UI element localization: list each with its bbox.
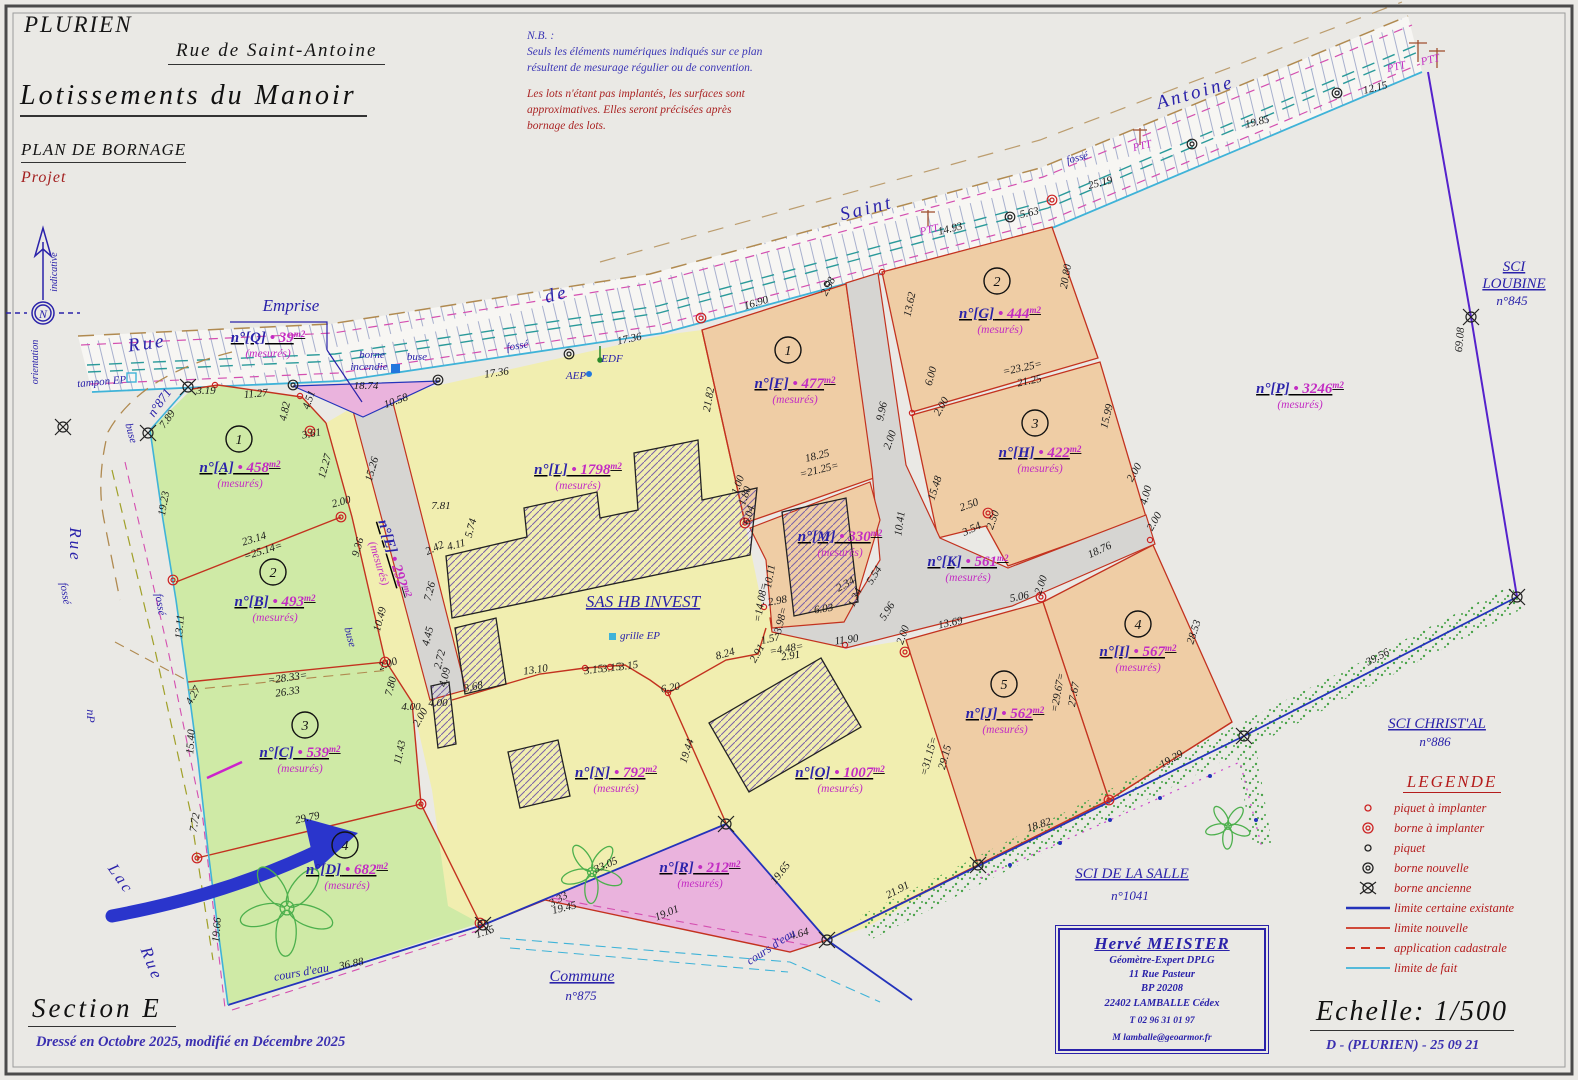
svg-text:n°[C] • 539m2: n°[C] • 539m2 xyxy=(259,744,341,761)
map-label: indicative xyxy=(49,252,60,292)
map-label: Rue xyxy=(66,526,85,562)
svg-text:3: 3 xyxy=(1031,417,1039,432)
svg-text:(mesurés): (mesurés) xyxy=(593,783,639,795)
legend-item-label: limite nouvelle xyxy=(1394,921,1468,936)
measurement-label: 4.00 xyxy=(1138,484,1155,506)
map-label: EDF xyxy=(600,353,623,365)
borne-anc-icon xyxy=(55,419,71,435)
legend-item-label: borne ancienne xyxy=(1394,881,1471,896)
svg-text:2: 2 xyxy=(270,566,277,581)
svg-text:n°[F] • 477m2: n°[F] • 477m2 xyxy=(754,375,836,392)
surveyor-address1: 11 Rue Pasteur xyxy=(1062,968,1262,982)
map-label: buse xyxy=(407,351,427,363)
svg-text:(mesurés): (mesurés) xyxy=(1277,399,1323,411)
measurement-label: 18.74 xyxy=(354,380,379,392)
legend-item-limite-nouvelle: limite nouvelle xyxy=(1338,918,1566,938)
map-label: Commune xyxy=(550,968,615,985)
measurement-label: 7.81 xyxy=(431,500,450,512)
map-label: n°875 xyxy=(565,988,597,1003)
svg-text:n°[H] • 422m2: n°[H] • 422m2 xyxy=(999,444,1082,461)
warn-line1: Les lots n'étant pas implantés, les surf… xyxy=(527,86,837,102)
measurement-label: 2.00 xyxy=(1144,510,1164,533)
warn-line2: approximatives. Elles seront précisées a… xyxy=(527,102,837,118)
svg-text:(mesurés): (mesurés) xyxy=(324,880,370,892)
nb-note: N.B. : Seuls les éléments numériques ind… xyxy=(527,28,837,76)
svg-text:(mesurés): (mesurés) xyxy=(1017,463,1063,475)
legend-item-label: borne à implanter xyxy=(1394,821,1484,836)
map-label: PTT xyxy=(1419,52,1442,69)
legend-item-borne-ancienne: borne ancienne xyxy=(1338,878,1566,898)
legend-item-limite-fait: limite de fait xyxy=(1338,958,1566,978)
application-cadastrale-icon xyxy=(1338,940,1394,956)
svg-text:n°[P] • 3246m2: n°[P] • 3246m2 xyxy=(1256,380,1344,397)
svg-text:n°[M] • 330m2: n°[M] • 330m2 xyxy=(798,528,883,545)
svg-text:n°[K] • 561m2: n°[K] • 561m2 xyxy=(927,553,1009,570)
svg-text:(mesurés): (mesurés) xyxy=(252,612,298,624)
svg-text:4: 4 xyxy=(1135,618,1142,633)
legend-item-borne-implanter: borne à implanter xyxy=(1338,818,1566,838)
measurement-label: 15.40 xyxy=(184,729,198,755)
section-label: Section E xyxy=(28,993,176,1027)
svg-text:(mesurés): (mesurés) xyxy=(817,547,863,559)
limite-nouvelle-icon xyxy=(1338,920,1394,936)
legend: LEGENDE piquet à implanterborne à implan… xyxy=(1338,772,1566,978)
svg-text:(mesurés): (mesurés) xyxy=(817,783,863,795)
surveyor-title: Géomètre-Expert DPLG xyxy=(1062,954,1262,968)
map-label: Lac xyxy=(104,860,137,898)
measurement-label: 4.51 xyxy=(300,389,318,411)
svg-text:n°[R] • 212m2: n°[R] • 212m2 xyxy=(659,859,741,876)
parcel-label-P: n°[P] • 3246m2(mesurés) xyxy=(1256,380,1344,411)
limite-fait-icon xyxy=(1338,960,1394,976)
legend-item-label: piquet xyxy=(1394,841,1425,856)
borne-anc-icon xyxy=(819,932,835,948)
svg-text:(mesurés): (mesurés) xyxy=(217,478,263,490)
measurement-label: 1.15 xyxy=(474,923,497,941)
page-title: Lotissements du Manoir xyxy=(20,80,367,117)
street-title: Rue de Saint-Antoine xyxy=(168,40,385,65)
surveyor-address3: 22402 LAMBALLE Cédex xyxy=(1062,997,1262,1011)
measurement-label: 69.08 xyxy=(1453,326,1467,352)
measurement-label: 3.19 xyxy=(195,385,216,397)
aep-icon xyxy=(586,371,592,377)
svg-text:(mesurés): (mesurés) xyxy=(277,763,323,775)
surveyor-box: Hervé MEISTER Géomètre-Expert DPLG 11 Ru… xyxy=(1058,928,1266,1051)
surveyor-email: M lamballe@geoarmor.fr xyxy=(1062,1032,1262,1045)
commune-title: PLURIEN xyxy=(24,12,133,38)
legend-item-label: limite de fait xyxy=(1394,961,1457,976)
borne-incendie-icon xyxy=(391,364,400,373)
measurement-label: 11.27 xyxy=(243,387,268,401)
nb-line1: Seuls les éléments numériques indiqués s… xyxy=(527,44,837,60)
map-label: n°845 xyxy=(1496,293,1528,308)
building-annex-2 xyxy=(508,740,570,808)
svg-text:5: 5 xyxy=(1001,678,1008,693)
map-label: SCI CHRIST'AL xyxy=(1388,716,1486,732)
piquet-icon xyxy=(1338,840,1394,856)
svg-text:n°[O] • 1007m2: n°[O] • 1007m2 xyxy=(795,764,885,781)
svg-text:n°[N] • 792m2: n°[N] • 792m2 xyxy=(575,764,657,781)
svg-text:1: 1 xyxy=(785,344,792,359)
measurement-label: 4.00 xyxy=(428,697,448,709)
doc-ref-label: D - (PLURIEN) - 25 09 21 xyxy=(1326,1038,1479,1054)
map-label: grille EP xyxy=(620,630,660,642)
limite-certaine-icon xyxy=(1338,900,1394,916)
borne-ancienne-icon xyxy=(1338,880,1394,896)
svg-text:4: 4 xyxy=(342,839,349,854)
plan-sheet: N 17.3617.3618.7410.5816.902.5814.935.63… xyxy=(0,0,1578,1080)
svg-text:(mesurés): (mesurés) xyxy=(982,724,1028,736)
map-label: SAS HB INVEST xyxy=(586,592,702,611)
borne-anc-icon xyxy=(718,816,734,832)
legend-items: piquet à implanterborne à implanterpique… xyxy=(1338,798,1566,978)
svg-text:n°[L] • 1798m2: n°[L] • 1798m2 xyxy=(534,461,622,478)
status-label: Projet xyxy=(21,169,66,187)
legend-item-borne-nouvelle: borne nouvelle xyxy=(1338,858,1566,878)
measurement-label: 19.66 xyxy=(210,917,224,943)
svg-text:(mesurés): (mesurés) xyxy=(772,394,818,406)
surveyor-address2: BP 20208 xyxy=(1062,982,1262,996)
measurement-label: 7.72 xyxy=(187,811,202,833)
legend-item-label: piquet à implanter xyxy=(1394,801,1486,816)
borne-anc-icon xyxy=(1509,589,1525,605)
legend-item-piquet-implanter: piquet à implanter xyxy=(1338,798,1566,818)
svg-text:2: 2 xyxy=(994,275,1001,290)
svg-text:(mesurés): (mesurés) xyxy=(1115,662,1161,674)
svg-text:1: 1 xyxy=(236,433,243,448)
legend-item-application-cadastrale: application cadastrale xyxy=(1338,938,1566,958)
svg-text:(mesurés): (mesurés) xyxy=(677,878,723,890)
svg-text:(mesurés): (mesurés) xyxy=(245,348,291,360)
grille-ep-icon xyxy=(609,633,616,640)
map-label: AEP xyxy=(565,370,586,382)
legend-item-label: borne nouvelle xyxy=(1394,861,1469,876)
borne-implanter-icon xyxy=(1338,820,1394,836)
scale-label: Echelle: 1/500 xyxy=(1310,996,1514,1031)
map-label: orientation xyxy=(30,340,41,384)
map-label: n°886 xyxy=(1419,734,1451,749)
map-label: n°1041 xyxy=(1111,888,1149,903)
warning-note: Les lots n'étant pas implantés, les surf… xyxy=(527,86,837,134)
warn-line3: bornage des lots. xyxy=(527,118,837,134)
map-label: borne xyxy=(359,349,385,361)
legend-item-label: application cadastrale xyxy=(1394,941,1507,956)
svg-text:n°[B] • 493m2: n°[B] • 493m2 xyxy=(234,593,316,610)
map-label: Rue xyxy=(136,943,167,984)
svg-text:(mesurés): (mesurés) xyxy=(555,480,601,492)
borne-anc-icon xyxy=(970,857,986,873)
measurement-label: 13.11 xyxy=(173,614,187,639)
map-label: fossé xyxy=(152,593,168,618)
map-label: Emprise xyxy=(262,296,320,315)
legend-title: LEGENDE xyxy=(1338,772,1566,792)
surveyor-phone: T 02 96 31 01 97 xyxy=(1062,1015,1262,1028)
svg-text:n°[D] • 682m2: n°[D] • 682m2 xyxy=(306,861,388,878)
map-label: SCI DE LA SALLE xyxy=(1075,866,1189,882)
svg-text:3: 3 xyxy=(301,719,309,734)
surveyor-name: Hervé MEISTER xyxy=(1062,934,1262,954)
tree-icon xyxy=(1204,804,1251,849)
borne-nouvelle-icon xyxy=(1338,860,1394,876)
svg-text:n°[A] • 458m2: n°[A] • 458m2 xyxy=(199,459,281,476)
borne-bn-icon xyxy=(433,375,443,385)
nb-heading: N.B. : xyxy=(527,28,837,44)
map-label: LOUBINE xyxy=(1481,276,1545,292)
plan-type-title: PLAN DE BORNAGE xyxy=(21,140,186,163)
map-label: buse xyxy=(122,422,139,445)
legend-item-label: limite certaine existante xyxy=(1394,901,1514,916)
compass-letter: N xyxy=(38,307,48,321)
svg-text:(mesurés): (mesurés) xyxy=(977,324,1023,336)
map-label: nP xyxy=(84,709,98,723)
piquet-implanter-icon xyxy=(1338,800,1394,816)
drawn-date-label: Dressé en Octobre 2025, modifié en Décem… xyxy=(36,1034,345,1051)
borne-anc-icon xyxy=(1236,728,1252,744)
map-label: SCI xyxy=(1503,259,1527,275)
map-label: fossé xyxy=(57,582,73,607)
map-label: incendie xyxy=(350,361,387,373)
legend-item-limite-certaine: limite certaine existante xyxy=(1338,898,1566,918)
svg-text:(mesurés): (mesurés) xyxy=(945,572,991,584)
legend-item-piquet: piquet xyxy=(1338,838,1566,858)
svg-text:n°[G] • 444m2: n°[G] • 444m2 xyxy=(959,305,1041,322)
nb-line2: résultent de mesurage régulier ou de con… xyxy=(527,60,837,76)
